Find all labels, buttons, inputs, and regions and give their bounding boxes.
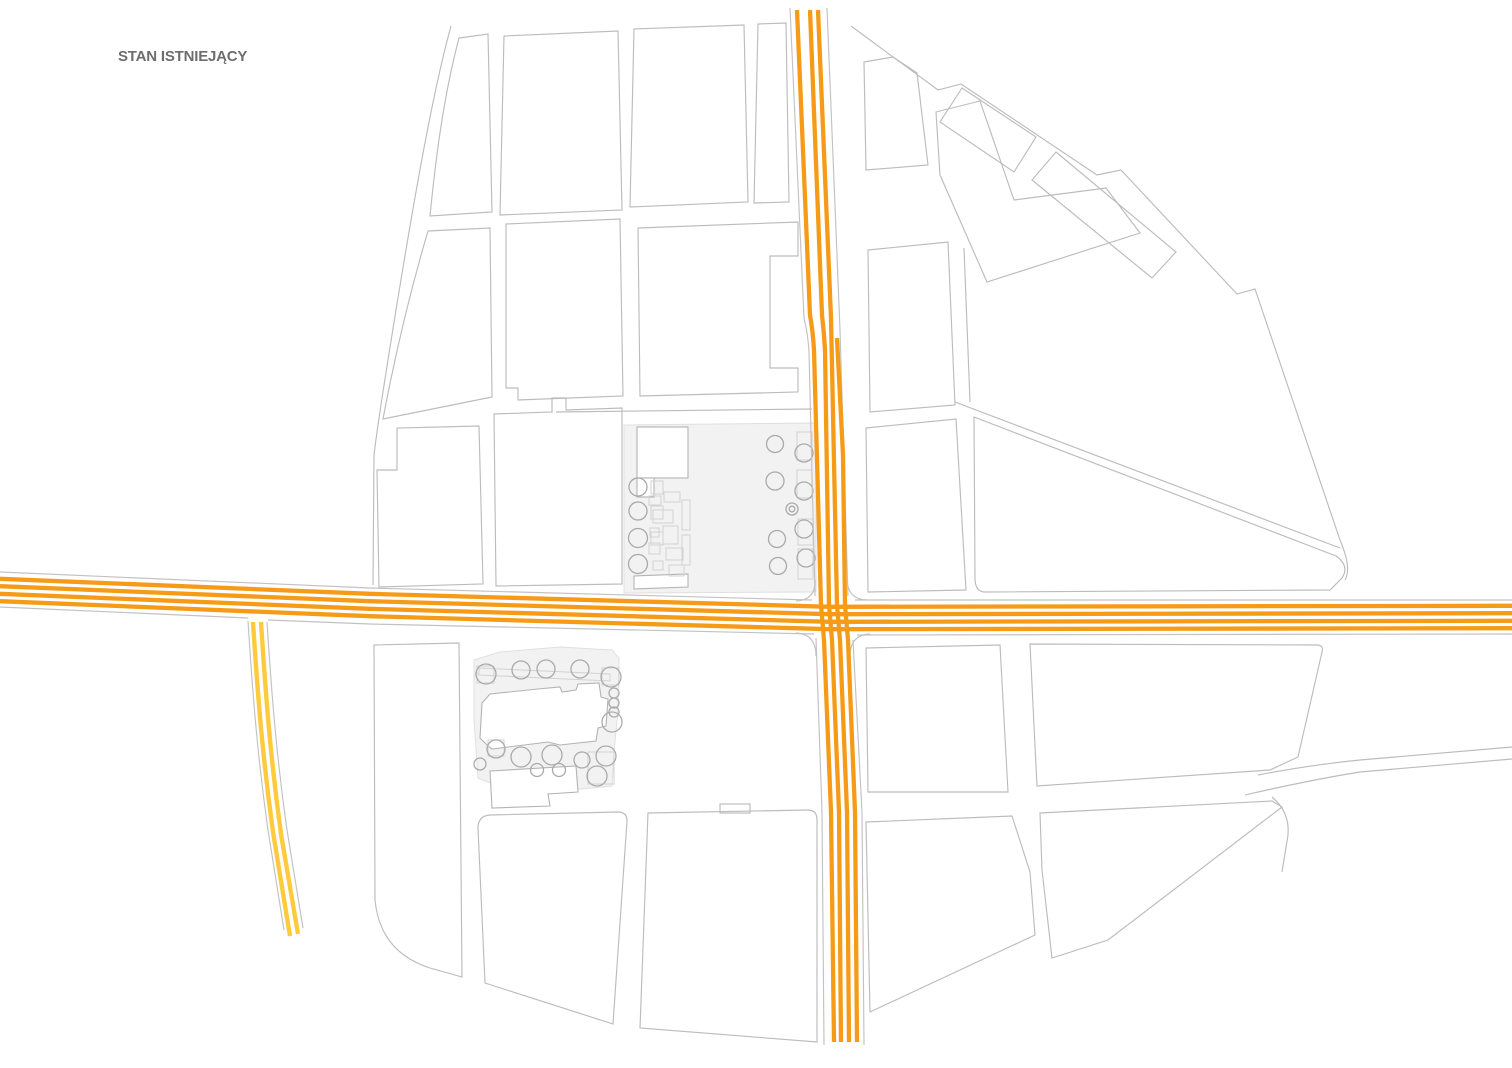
city-block [868,242,955,412]
church-building [480,683,608,749]
city-block [940,88,1036,172]
city-block [506,219,623,400]
city-block [1030,644,1323,786]
map-canvas: STAN ISTNIEJĄCY [0,0,1512,1068]
city-block [478,812,627,1024]
city-block [630,25,748,207]
road-casing-line [857,634,1512,635]
street-line [1258,747,1512,775]
city-block [430,34,492,216]
city-block [1040,801,1282,958]
map-stage: STAN ISTNIEJĄCY [0,0,1512,1068]
outer-boundary [373,26,1348,585]
secondary-road [253,622,298,936]
city-block [754,23,789,203]
city-block [640,810,817,1042]
city-block [374,643,462,977]
city-block [866,816,1035,1012]
boundary-east-staircase [851,26,1348,580]
city-block [494,398,622,586]
street-line [1245,759,1512,795]
city-block [638,222,798,396]
intersection-fillet [796,633,816,656]
city-blocks [374,23,1345,1042]
city-block [866,419,966,592]
road-stripe [253,622,290,936]
city-block [500,31,622,215]
city-block [866,645,1008,792]
city-block [383,228,492,419]
city-block [974,417,1345,592]
street-line [964,248,970,402]
main-square-building [637,427,688,478]
page-title: STAN ISTNIEJĄCY [118,48,247,65]
city-block [864,57,928,170]
intersection-fillet [847,580,868,600]
city-block [936,101,1140,282]
city-block [1032,152,1176,278]
street-line [955,402,1340,548]
boundary-west-curve [373,26,451,585]
city-block [377,426,483,587]
